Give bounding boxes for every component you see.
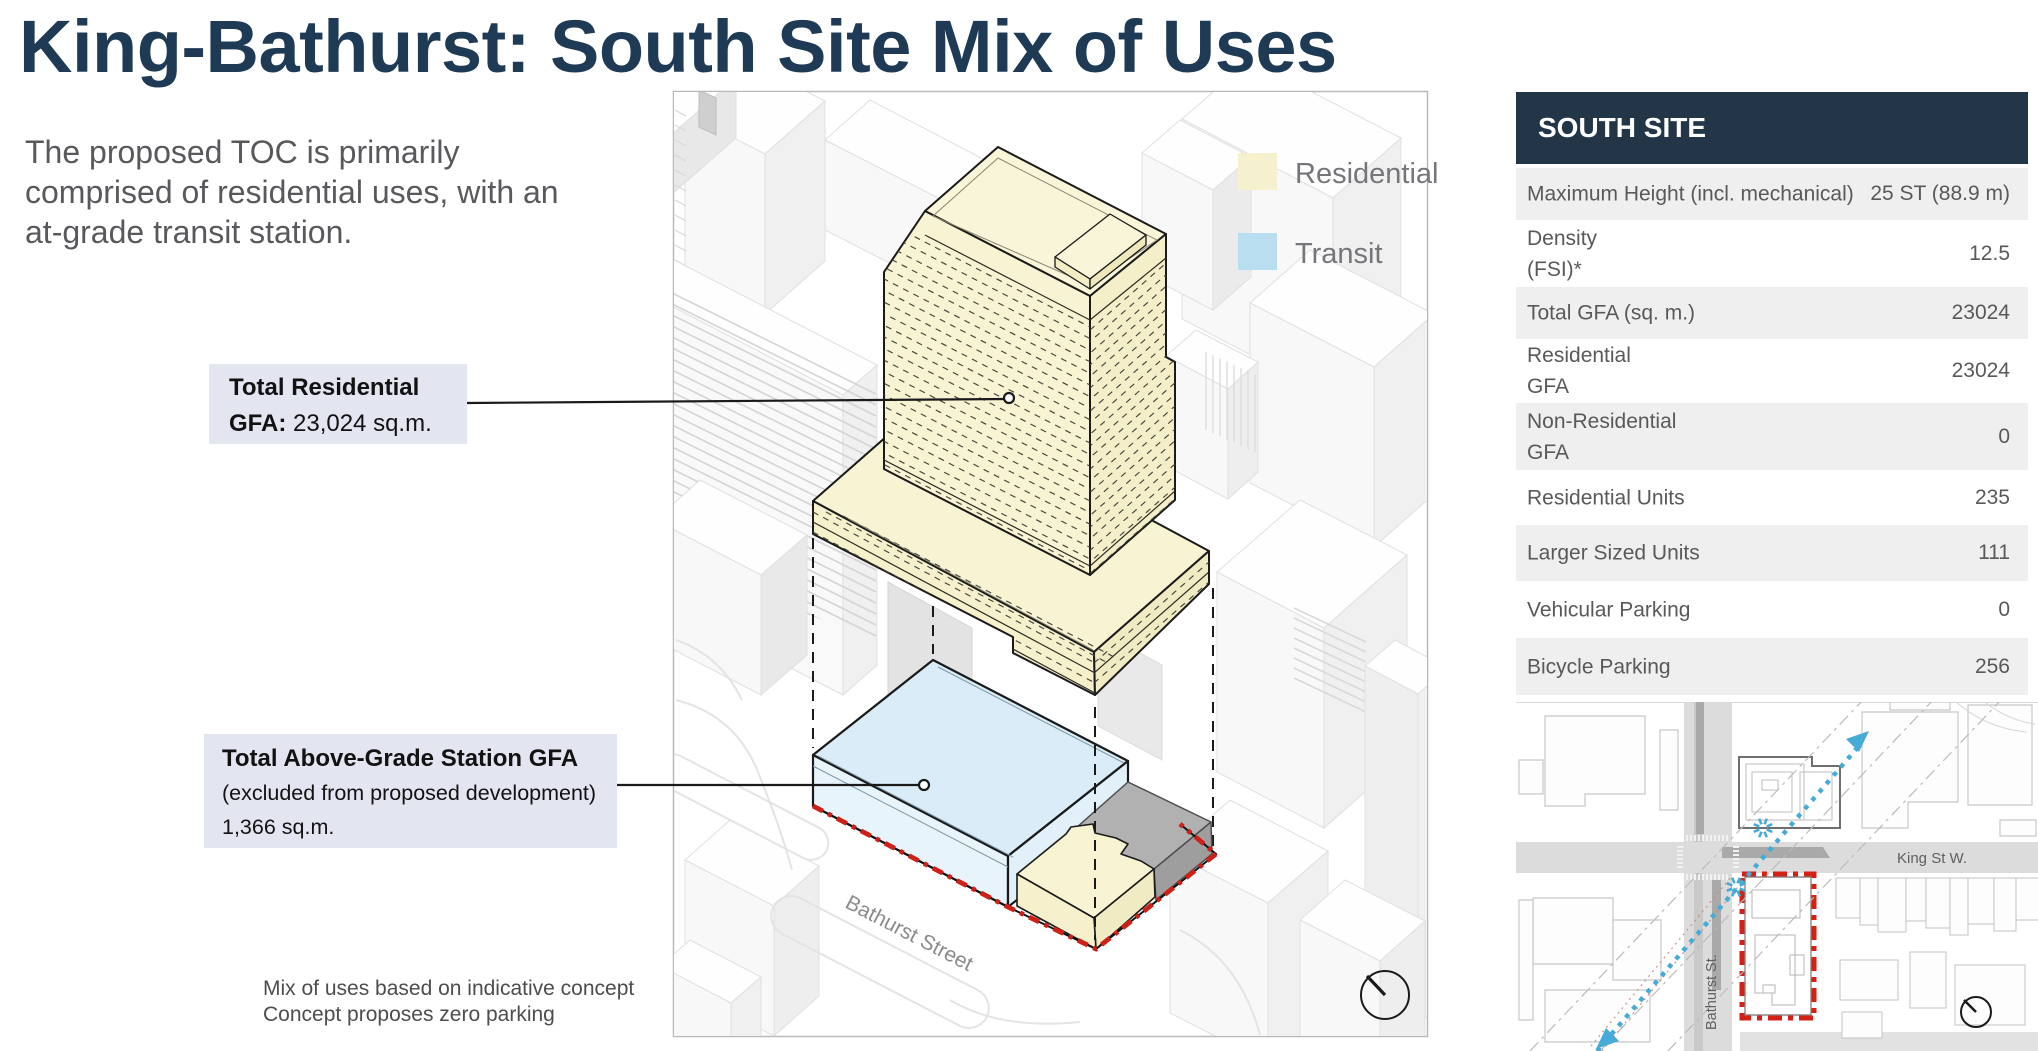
svg-text:Bathurst St.: Bathurst St.	[1704, 954, 1720, 1030]
svg-text:Transit: Transit	[1295, 238, 1383, 270]
svg-text:King St W.: King St W.	[1897, 850, 1967, 867]
svg-text:Residential: Residential	[1295, 158, 1438, 190]
